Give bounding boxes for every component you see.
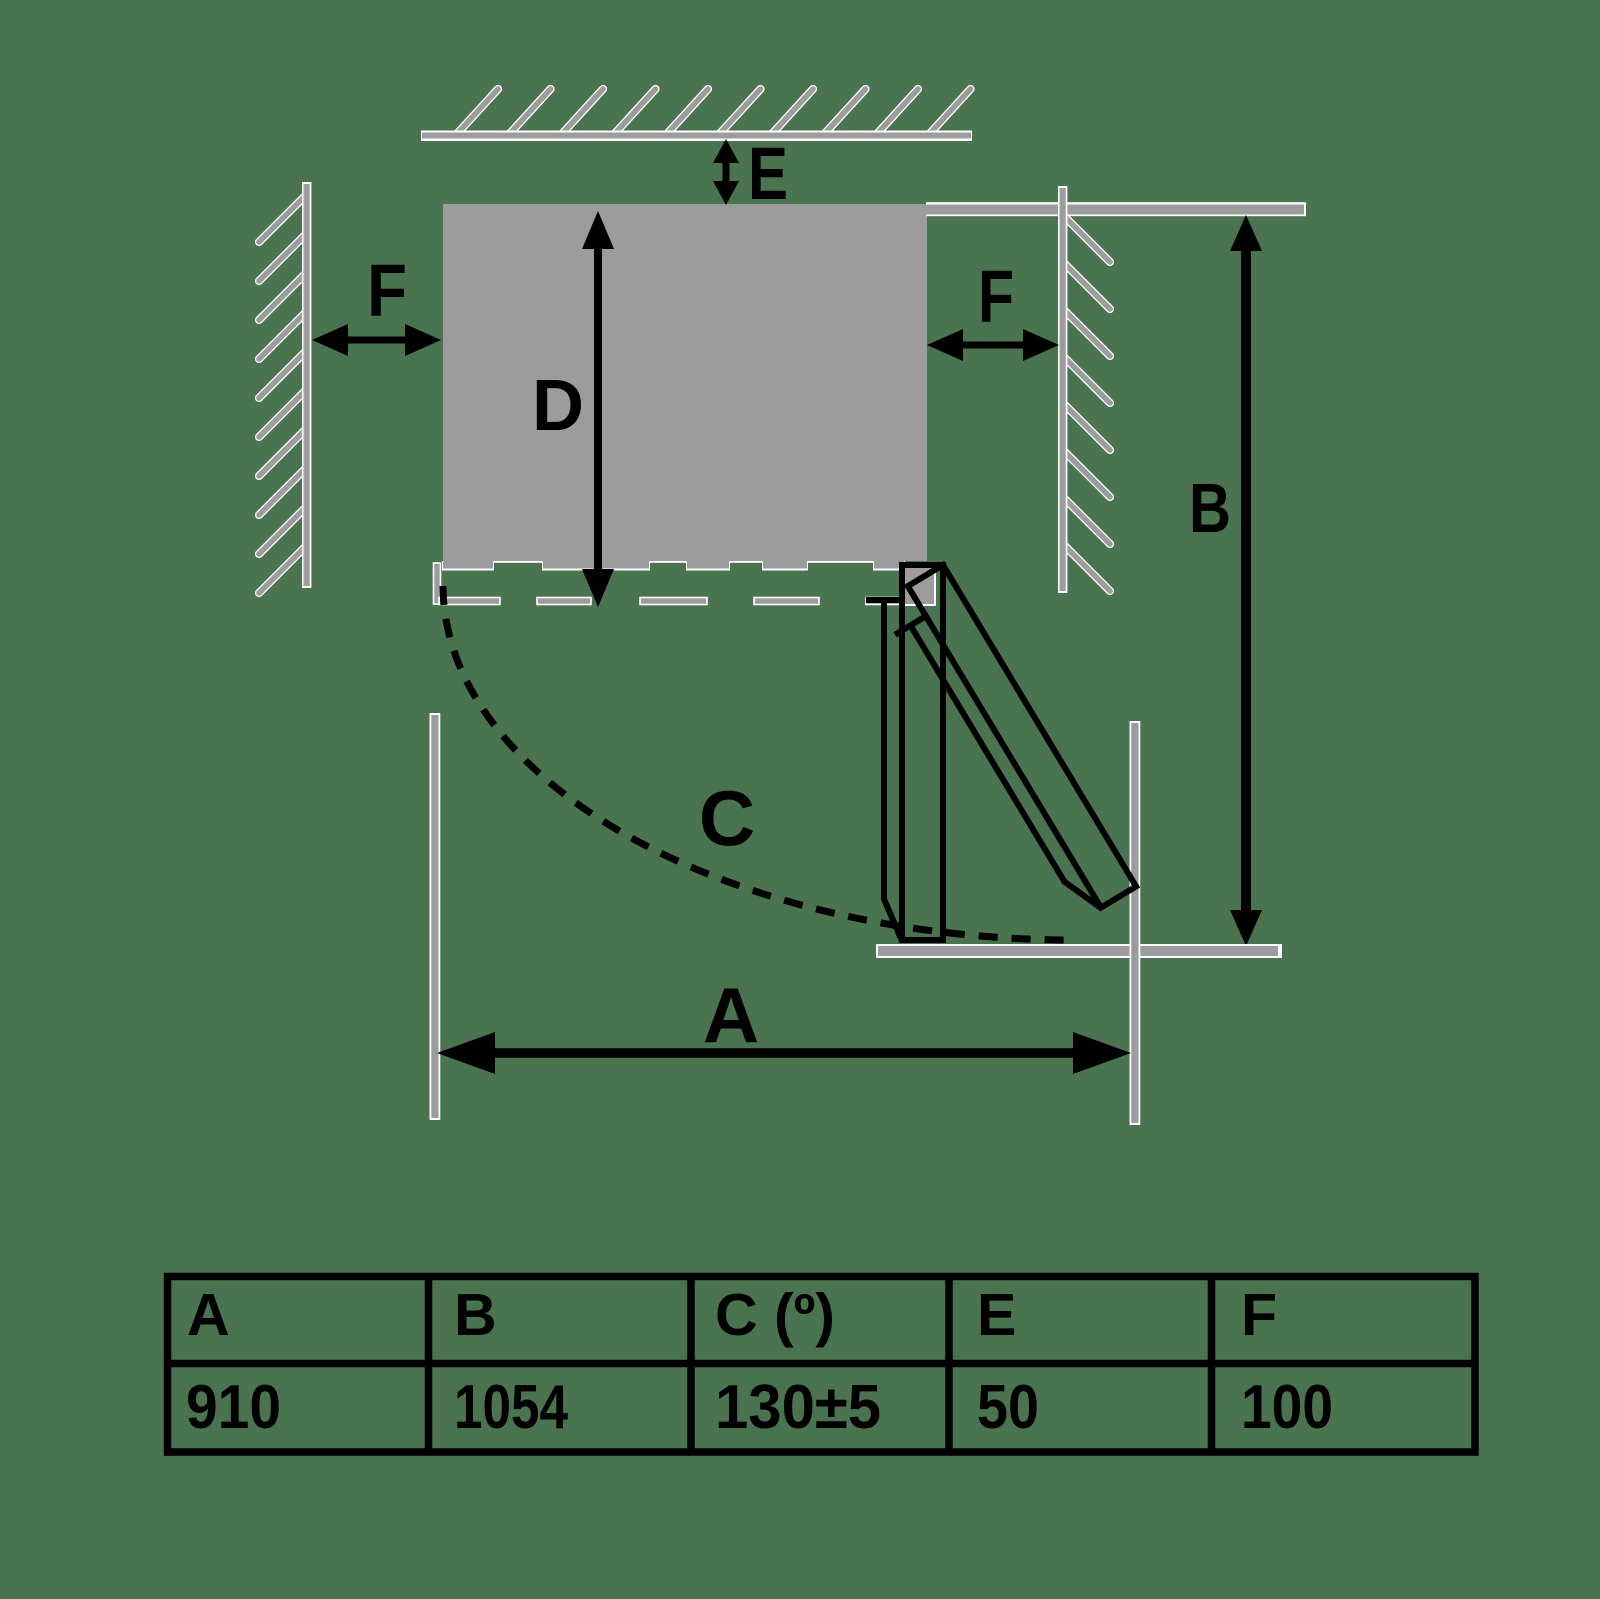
svg-text:C: C bbox=[699, 774, 755, 862]
svg-text:B: B bbox=[454, 1282, 497, 1348]
svg-text:E: E bbox=[748, 132, 788, 215]
svg-text:910: 910 bbox=[186, 1373, 281, 1442]
svg-text:C (º): C (º) bbox=[715, 1282, 835, 1348]
svg-text:D: D bbox=[532, 366, 584, 446]
svg-text:A: A bbox=[187, 1282, 230, 1348]
svg-text:F: F bbox=[978, 255, 1014, 338]
svg-text:F: F bbox=[367, 249, 407, 332]
svg-text:100: 100 bbox=[1241, 1373, 1333, 1442]
svg-text:B: B bbox=[1189, 469, 1231, 547]
svg-text:F: F bbox=[1241, 1282, 1277, 1348]
svg-text:1054: 1054 bbox=[454, 1373, 568, 1442]
svg-text:130±5: 130±5 bbox=[715, 1373, 881, 1442]
svg-text:50: 50 bbox=[977, 1373, 1039, 1442]
svg-text:E: E bbox=[977, 1282, 1016, 1348]
svg-text:A: A bbox=[703, 971, 759, 1059]
